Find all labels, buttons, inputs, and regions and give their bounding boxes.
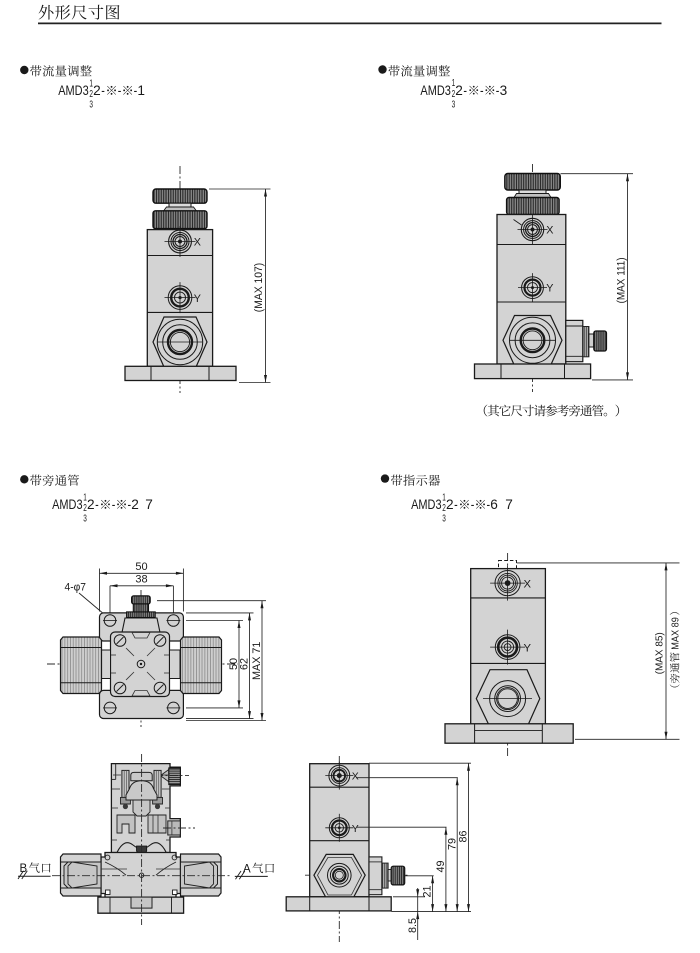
svg-text:-: - (471, 496, 475, 512)
svg-text:2: 2 (446, 496, 454, 512)
svg-text:2: 2 (93, 82, 101, 98)
svg-text:62: 62 (239, 658, 251, 670)
svg-text:Y: Y (194, 293, 201, 305)
svg-text:7: 7 (505, 496, 513, 512)
svg-text:AMD3: AMD3 (411, 496, 442, 512)
svg-text:Y: Y (352, 823, 359, 835)
svg-text:-: - (480, 82, 484, 98)
svg-text:B: B (20, 863, 28, 875)
svg-text:2: 2 (131, 496, 139, 512)
svg-text:-: - (95, 496, 99, 512)
svg-text:(MAX 107): (MAX 107) (253, 263, 265, 313)
svg-text:49: 49 (435, 860, 447, 872)
svg-text:4-φ7: 4-φ7 (65, 582, 87, 594)
svg-text:X: X (194, 237, 201, 249)
svg-text:A: A (243, 863, 251, 875)
svg-text:Y: Y (546, 283, 553, 295)
svg-text:3: 3 (452, 99, 456, 110)
svg-text:-: - (101, 82, 105, 98)
svg-text:X: X (352, 771, 359, 783)
svg-text:-: - (454, 496, 458, 512)
svg-text:7: 7 (145, 496, 153, 512)
svg-text:2: 2 (455, 82, 463, 98)
svg-text:(MAX 111): (MAX 111) (615, 257, 627, 303)
svg-text:AMD3: AMD3 (58, 82, 89, 98)
svg-text:50: 50 (135, 561, 147, 573)
svg-text:-: - (118, 82, 122, 98)
svg-text:AMD3: AMD3 (420, 82, 451, 98)
svg-text:8.5: 8.5 (407, 918, 419, 933)
svg-text:X: X (524, 578, 532, 590)
svg-text:3: 3 (500, 82, 508, 98)
svg-text:3: 3 (89, 100, 93, 111)
svg-text:-: - (463, 82, 467, 98)
svg-text:-: - (112, 496, 116, 512)
svg-text:3: 3 (83, 514, 87, 525)
svg-text:X: X (546, 224, 553, 236)
svg-text:AMD3: AMD3 (52, 496, 83, 512)
svg-text:1: 1 (137, 82, 145, 98)
svg-text:21: 21 (422, 885, 434, 897)
svg-text:79: 79 (446, 838, 458, 850)
svg-text:MAX 89: MAX 89 (671, 617, 682, 650)
svg-text:Y: Y (524, 643, 532, 655)
svg-text:86: 86 (458, 830, 470, 842)
svg-text:38: 38 (135, 574, 147, 586)
svg-text:(MAX 85): (MAX 85) (655, 632, 666, 674)
svg-text:MAX 71: MAX 71 (251, 642, 263, 680)
svg-text:3: 3 (442, 514, 446, 525)
svg-text:6: 6 (490, 496, 498, 512)
svg-text:2: 2 (87, 496, 95, 512)
